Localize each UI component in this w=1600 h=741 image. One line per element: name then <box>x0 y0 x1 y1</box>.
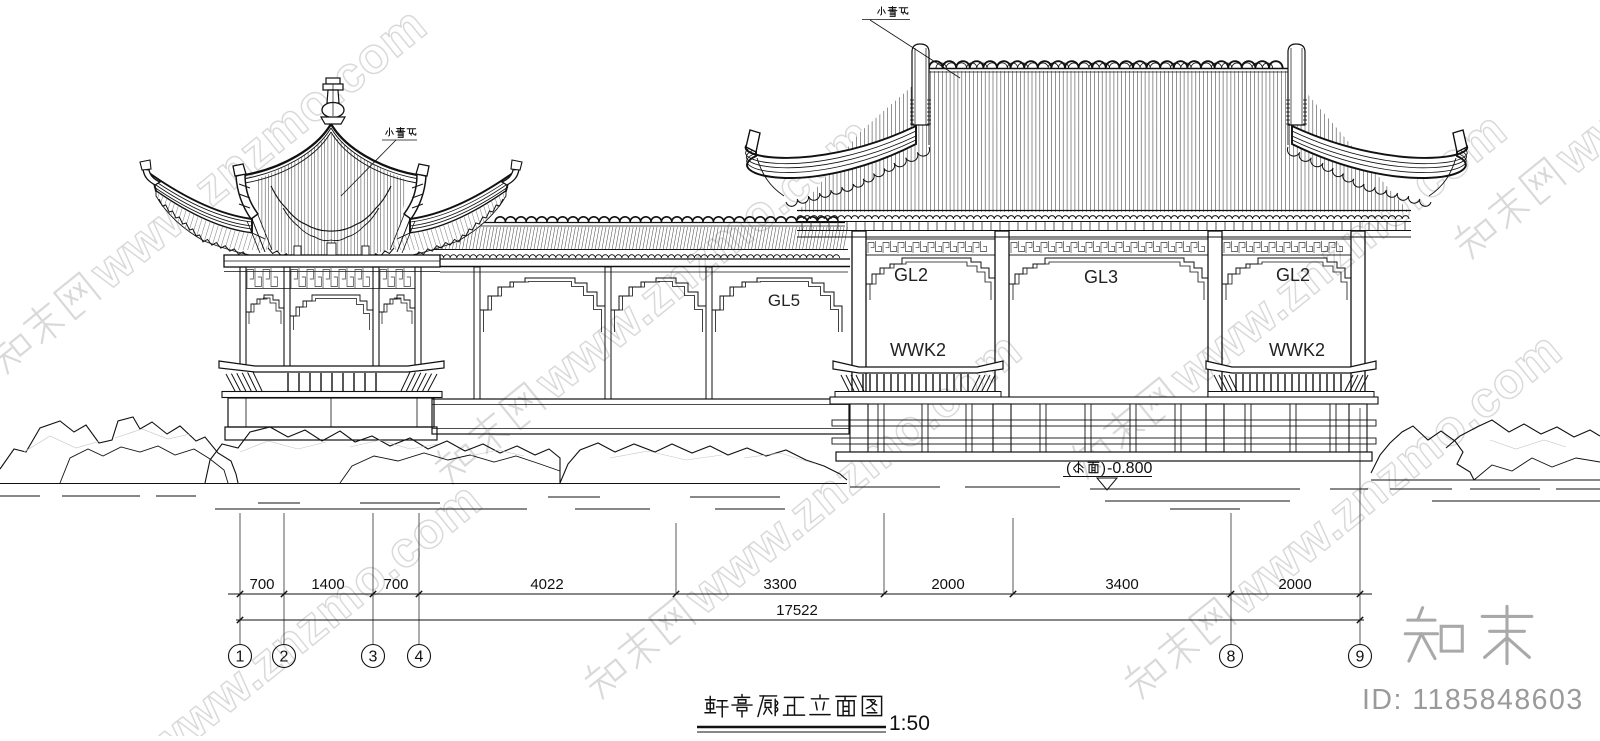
svg-text:(: ( <box>1066 460 1071 477</box>
svg-text:WWK2: WWK2 <box>890 340 946 360</box>
svg-text:2: 2 <box>280 649 289 666</box>
svg-text:8: 8 <box>1227 649 1236 666</box>
svg-text:GL3: GL3 <box>1084 267 1118 287</box>
svg-text:1400: 1400 <box>311 576 344 593</box>
svg-text:3400: 3400 <box>1105 576 1138 593</box>
svg-text:WWK2: WWK2 <box>1269 340 1325 360</box>
svg-text:3: 3 <box>369 649 378 666</box>
svg-text:700: 700 <box>249 576 274 593</box>
svg-text:ID: 1185848603: ID: 1185848603 <box>1362 684 1584 716</box>
svg-text:GL2: GL2 <box>894 265 928 285</box>
svg-text:700: 700 <box>383 576 408 593</box>
svg-text:GL5: GL5 <box>768 291 800 310</box>
svg-text:2000: 2000 <box>931 576 964 593</box>
svg-text:1: 1 <box>236 649 245 666</box>
svg-text:17522: 17522 <box>776 602 818 619</box>
svg-text:4: 4 <box>415 649 424 666</box>
svg-text:4022: 4022 <box>530 576 563 593</box>
svg-text:9: 9 <box>1356 649 1365 666</box>
svg-text:1:50: 1:50 <box>889 712 930 735</box>
svg-text:GL2: GL2 <box>1276 265 1310 285</box>
svg-text:): ) <box>1101 460 1106 477</box>
svg-text:-0.800: -0.800 <box>1107 460 1152 477</box>
svg-text:2000: 2000 <box>1278 576 1311 593</box>
svg-text:3300: 3300 <box>763 576 796 593</box>
